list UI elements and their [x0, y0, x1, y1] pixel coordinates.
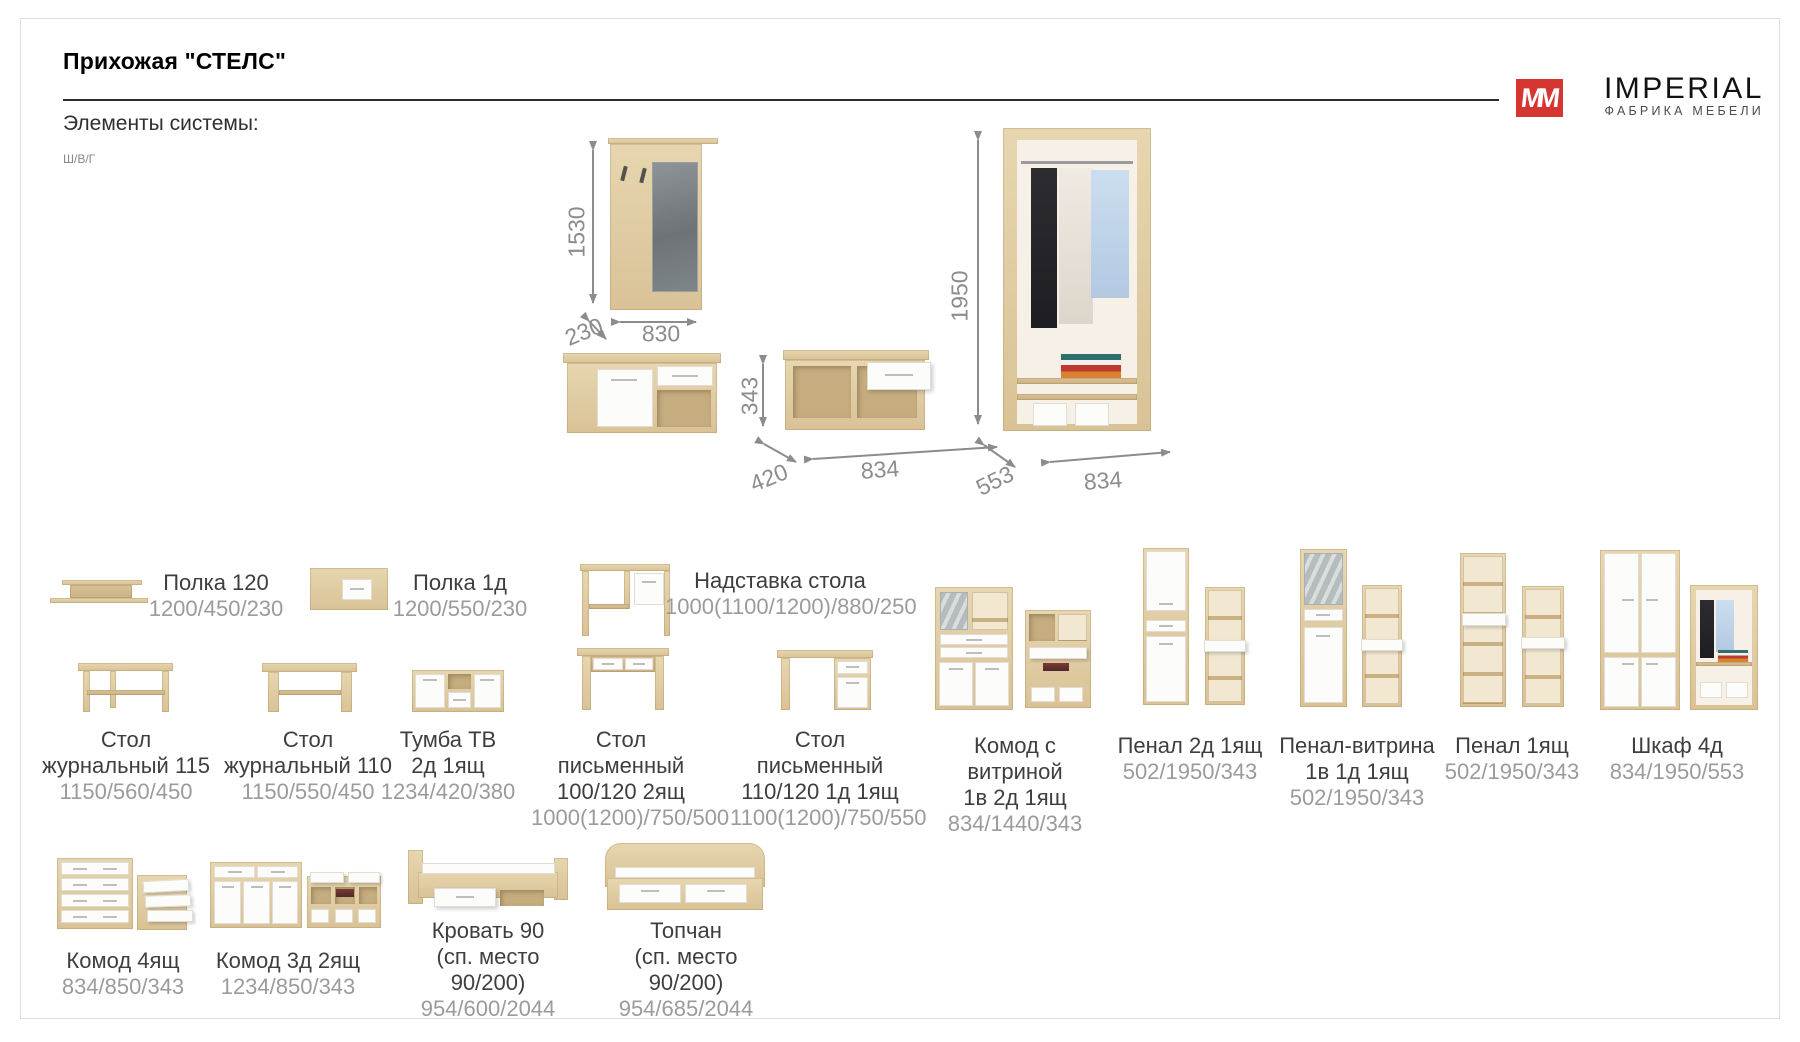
- drawer: [940, 647, 1008, 658]
- open-niche: [359, 887, 377, 904]
- side-panel: [341, 672, 352, 712]
- pulled-drawer: [143, 879, 190, 893]
- drawer: [61, 878, 129, 891]
- diagram-wardrobe: [1003, 128, 1153, 434]
- page-title: Прихожая "СТЕЛС": [63, 48, 286, 75]
- handle: [423, 679, 437, 681]
- drawer: [448, 692, 471, 708]
- handle: [1622, 663, 1634, 665]
- product-label: Комод 3д 2ящ 1234/850/343: [203, 948, 373, 1000]
- storage-box: [1031, 687, 1055, 702]
- diagram-mirror-hanger: [608, 138, 723, 314]
- product-label: Стол письменный 110/120 1д 1ящ 1100(1200…: [730, 727, 910, 831]
- storage-box: [1033, 403, 1067, 426]
- handle: [1646, 663, 1658, 665]
- product-name: Стол: [223, 727, 393, 753]
- open-shelves: [1058, 614, 1087, 641]
- pulled-drawer: [1521, 637, 1565, 649]
- product-name: Кровать 90: [403, 918, 573, 944]
- product-name-2: 110/120 1д 1ящ: [730, 779, 910, 805]
- handle: [103, 916, 117, 918]
- brand-name: IMPERIAL: [1576, 74, 1764, 104]
- dim-mirror-height: 1530: [564, 206, 591, 257]
- product-image-polka-120: [50, 570, 150, 616]
- handle: [73, 916, 87, 918]
- door: [214, 881, 241, 924]
- drawer: [685, 884, 747, 903]
- drawer: [61, 910, 129, 923]
- product-image-penal-1: [1460, 553, 1564, 708]
- door: [1641, 553, 1676, 653]
- door: [634, 573, 664, 605]
- door: [1146, 636, 1186, 702]
- product-label: Комод 4ящ 834/850/343: [43, 948, 203, 1000]
- handle: [453, 699, 466, 701]
- product-label: Стол журнальный 115 1150/560/450: [41, 727, 211, 805]
- table-top: [78, 663, 173, 671]
- handle: [350, 588, 364, 590]
- drawer: [61, 894, 129, 907]
- leg-panel: [655, 656, 664, 710]
- handle: [103, 900, 117, 902]
- door: [415, 674, 445, 708]
- handle: [949, 668, 963, 670]
- lower-shelf: [87, 690, 165, 695]
- lower-shelf: [279, 690, 341, 695]
- white-coat: [1059, 168, 1093, 324]
- product-label: Комод с витриной 1в 2д 1ящ 834/1440/343: [925, 733, 1105, 837]
- product-label: Шкаф 4д 834/1950/553: [1602, 733, 1752, 785]
- product-name-2: 2д 1ящ: [378, 753, 518, 779]
- handle: [103, 868, 117, 870]
- pulled-drawer: [1462, 613, 1506, 626]
- product-label: Пенал-витрина 1в 1д 1ящ 502/1950/343: [1272, 733, 1442, 811]
- storage-box: [1700, 682, 1722, 698]
- shelf: [1696, 662, 1752, 666]
- brand-logo-letters: MM: [1519, 83, 1560, 114]
- product-image-krovat-90: [408, 850, 570, 918]
- handle: [1159, 625, 1173, 627]
- handle: [966, 652, 982, 654]
- top-slab: [563, 353, 721, 363]
- handle: [633, 663, 645, 665]
- product-dims: 1234/850/343: [203, 974, 373, 1000]
- drawer: [657, 366, 713, 386]
- storage-box: [1059, 687, 1083, 702]
- product-dims: 1000(1100/1200)/880/250: [665, 594, 895, 620]
- door: [837, 677, 868, 708]
- handle: [846, 682, 859, 684]
- product-label: Кровать 90 (сп. место 90/200) 954/600/20…: [403, 918, 573, 1022]
- product-dims: 1000(1200)/750/500: [531, 805, 711, 831]
- handle: [103, 884, 117, 886]
- product-label: Топчан (сп. место 90/200) 954/685/2044: [601, 918, 771, 1022]
- leg-panel: [582, 656, 591, 710]
- dim-wardrobe-width: 834: [1083, 466, 1123, 496]
- product-dims: 502/1950/343: [1437, 759, 1587, 785]
- product-image-topchan: [605, 843, 767, 915]
- product-image-stol-110: [262, 663, 358, 715]
- handle: [707, 890, 725, 892]
- brand-logo: MM: [1516, 79, 1563, 117]
- product-dims: 954/600/2044: [403, 996, 573, 1022]
- dim-bench-width: 834: [860, 455, 900, 485]
- product-dims: 834/850/343: [43, 974, 203, 1000]
- open-niche: [657, 390, 711, 427]
- top-slab: [783, 350, 929, 360]
- dark-dress: [1700, 600, 1714, 658]
- product-image-komod-vitrina: [935, 585, 1095, 712]
- product-name: Тумба ТВ: [378, 727, 518, 753]
- door: [1641, 657, 1676, 707]
- handle: [885, 374, 913, 376]
- drawer: [619, 884, 681, 903]
- product-dims: 954/685/2044: [601, 996, 771, 1022]
- storage-box: [1726, 682, 1748, 698]
- storage-box: [358, 909, 376, 923]
- pulled-drawer: [1361, 639, 1403, 651]
- product-dims: 834/1950/553: [1602, 759, 1752, 785]
- product-name: Полка 1д: [392, 570, 528, 596]
- dim-mirror-width: 830: [642, 321, 680, 348]
- handle: [602, 663, 614, 665]
- product-label: Полка 120 1200/450/230: [148, 570, 284, 622]
- product-note: (сп. место 90/200): [403, 944, 573, 996]
- open-niche: [500, 890, 544, 906]
- product-image-nadstavka: [580, 560, 672, 640]
- mirror: [652, 162, 698, 292]
- product-image-polka-1d: [310, 566, 390, 612]
- pulled-drawer: [145, 894, 191, 908]
- folded-clothes: [1718, 650, 1748, 662]
- door: [1604, 657, 1639, 707]
- product-image-komod-3d2: [210, 862, 382, 930]
- product-name-2: журнальный 115: [41, 753, 211, 779]
- leg: [582, 571, 589, 636]
- product-label: Пенал 2д 1ящ 502/1950/343: [1110, 733, 1270, 785]
- drawer: [940, 634, 1008, 645]
- table-top: [777, 650, 873, 658]
- dark-dress: [1031, 168, 1057, 328]
- storage-box: [335, 909, 353, 923]
- handle: [642, 581, 656, 583]
- pulled-drawer: [348, 872, 380, 883]
- product-image-stol-115: [78, 663, 174, 715]
- hanging-rod: [1021, 161, 1133, 164]
- drawer: [61, 862, 129, 875]
- door: [939, 662, 973, 706]
- handle: [672, 375, 698, 377]
- handle: [73, 884, 87, 886]
- product-label: Надставка стола 1000(1100/1200)/880/250: [665, 568, 895, 620]
- product-dims: 1200/550/230: [392, 596, 528, 622]
- product-dims: 1150/560/450: [41, 779, 211, 805]
- product-label: Пенал 1ящ 502/1950/343: [1437, 733, 1587, 785]
- door: [1604, 553, 1639, 653]
- dims-legend: Ш/В/Г: [63, 152, 95, 166]
- shelf: [1017, 394, 1137, 400]
- product-name: Надставка стола: [665, 568, 895, 594]
- handle: [480, 679, 494, 681]
- open-shelves: [972, 592, 1008, 630]
- door: [272, 881, 298, 924]
- product-name-2: журнальный 110: [223, 753, 393, 779]
- mattress: [422, 863, 555, 874]
- product-label: Полка 1д 1200/550/230: [392, 570, 528, 622]
- handle: [966, 639, 982, 641]
- product-dims: 1150/550/450: [223, 779, 393, 805]
- product-image-shkaf-4d: [1600, 550, 1758, 712]
- storage-box: [311, 909, 329, 923]
- handle: [271, 871, 285, 873]
- handle: [1316, 614, 1330, 616]
- product-image-desk-110: [777, 650, 875, 712]
- handle: [251, 886, 263, 888]
- handle: [456, 896, 474, 898]
- product-name: Комод 4ящ: [43, 948, 203, 974]
- shelf: [1017, 378, 1137, 384]
- mattress: [615, 867, 755, 878]
- diagram-bench-open: [783, 348, 933, 434]
- drawer: [625, 658, 653, 670]
- glass-door: [1304, 553, 1343, 605]
- drawer: [342, 579, 372, 600]
- drawer: [837, 661, 868, 674]
- product-name: Стол письменный: [730, 727, 910, 779]
- product-image-komod-4: [57, 858, 189, 932]
- drawer: [257, 866, 298, 878]
- product-name: Шкаф 4д: [1602, 733, 1752, 759]
- section-heading: Элементы системы:: [63, 112, 259, 136]
- pulled-drawer: [1204, 640, 1246, 652]
- product-label: Стол журнальный 110 1150/550/450: [223, 727, 393, 805]
- handle: [1316, 635, 1330, 637]
- door: [1304, 627, 1343, 703]
- books: [1043, 663, 1069, 671]
- product-name-2: 100/120 2ящ: [531, 779, 711, 805]
- back-panel: [70, 585, 132, 598]
- product-dims: 502/1950/343: [1272, 785, 1442, 811]
- books: [336, 889, 354, 897]
- handle: [611, 379, 637, 381]
- product-label: Стол письменный 100/120 2ящ 1000(1200)/7…: [531, 727, 711, 831]
- product-dims: 834/1440/343: [925, 811, 1105, 837]
- pulled-drawer: [147, 910, 193, 922]
- handle: [222, 886, 234, 888]
- open-niche: [1029, 614, 1055, 641]
- open-niche: [448, 674, 471, 689]
- door: [597, 369, 653, 427]
- handle: [228, 871, 242, 873]
- handle: [641, 890, 659, 892]
- table-top: [577, 648, 669, 656]
- door: [474, 674, 501, 708]
- top-slab: [580, 564, 670, 571]
- product-name-2: 1в 2д 1ящ: [925, 785, 1105, 811]
- storage-box: [1075, 403, 1109, 426]
- drawer: [1304, 609, 1343, 621]
- product-label: Тумба ТВ 2д 1ящ 1234/420/380: [378, 727, 518, 805]
- brand-block: IMPERIAL ФАБРИКА МЕБЕЛИ: [1576, 74, 1764, 119]
- pulled-drawer: [434, 888, 496, 907]
- product-name: Пенал 1ящ: [1437, 733, 1587, 759]
- shelf: [589, 604, 629, 609]
- handle: [1646, 599, 1658, 601]
- glass-door: [940, 592, 968, 630]
- side-panel: [268, 672, 279, 712]
- open-niche: [311, 887, 331, 904]
- handle: [1159, 603, 1173, 605]
- door: [1146, 551, 1186, 611]
- product-dims: 502/1950/343: [1110, 759, 1270, 785]
- handle: [279, 886, 291, 888]
- pulled-drawer: [867, 362, 931, 390]
- product-dims: 1100(1200)/750/550: [730, 805, 910, 831]
- product-name: Полка 120: [148, 570, 284, 596]
- drawer: [593, 658, 623, 670]
- product-name: Топчан: [601, 918, 771, 944]
- product-name: Стол: [41, 727, 211, 753]
- product-image-penal-2d: [1143, 548, 1245, 706]
- header-divider: [63, 99, 1499, 101]
- product-name-2: 1в 1д 1ящ: [1272, 759, 1442, 785]
- handle: [73, 900, 87, 902]
- drawer: [1146, 620, 1186, 632]
- handle: [846, 666, 859, 668]
- pulled-drawer: [310, 872, 344, 883]
- dim-bench-height: 343: [737, 377, 764, 415]
- product-dims: 1234/420/380: [378, 779, 518, 805]
- table-top: [262, 663, 357, 672]
- dim-wardrobe-height: 1950: [947, 270, 974, 321]
- open-niche: [793, 366, 851, 418]
- product-name: Комод с витриной: [925, 733, 1105, 785]
- product-name: Комод 3д 2ящ: [203, 948, 373, 974]
- blue-shirt: [1091, 170, 1129, 298]
- folded-clothes: [1061, 354, 1121, 378]
- door: [243, 881, 270, 924]
- door: [975, 662, 1009, 706]
- product-image-desk-100: [577, 648, 671, 712]
- handle: [985, 668, 999, 670]
- pulled-drawer: [1029, 647, 1087, 659]
- drawer: [214, 866, 255, 878]
- blue-shirt: [1716, 600, 1734, 652]
- product-image-tumba-tv: [412, 670, 506, 714]
- product-dims: 1200/450/230: [148, 596, 284, 622]
- leg-panel: [781, 658, 790, 710]
- handle: [73, 868, 87, 870]
- handle: [1159, 643, 1173, 645]
- product-name: Пенал 2д 1ящ: [1110, 733, 1270, 759]
- open-shelves: [1463, 556, 1503, 704]
- catalog-page: Прихожая "СТЕЛС" Элементы системы: Ш/В/Г…: [0, 0, 1800, 1042]
- shelf-board: [50, 598, 148, 603]
- product-image-penal-vitrina: [1300, 549, 1402, 707]
- product-note: (сп. место 90/200): [601, 944, 771, 996]
- product-name: Стол письменный: [531, 727, 711, 779]
- brand-tagline: ФАБРИКА МЕБЕЛИ: [1576, 104, 1764, 119]
- product-name: Пенал-витрина: [1272, 733, 1442, 759]
- handle: [1622, 599, 1634, 601]
- diagram-bench-closed: [563, 353, 723, 441]
